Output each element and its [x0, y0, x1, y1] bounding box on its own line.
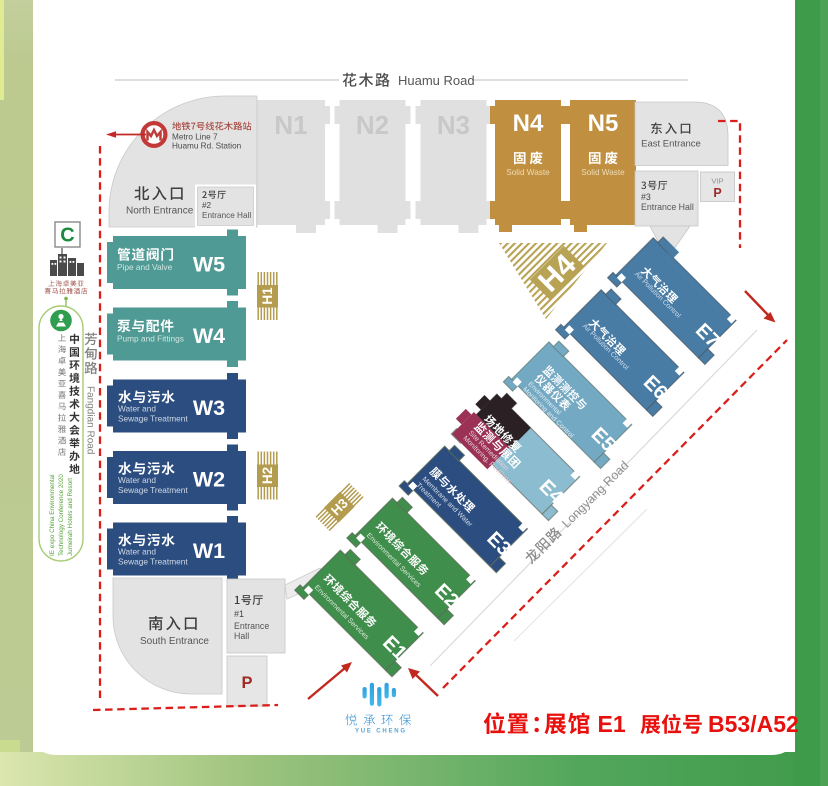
svg-text:Metro Line 7: Metro Line 7	[172, 133, 218, 142]
svg-text:#1: #1	[234, 609, 244, 619]
svg-text:VIP: VIP	[711, 177, 723, 186]
svg-text:Sewage Treatment: Sewage Treatment	[118, 485, 188, 495]
svg-text:Solid Waste: Solid Waste	[581, 168, 625, 177]
svg-text:Huamu Rd. Station: Huamu Rd. Station	[172, 142, 242, 151]
svg-text:Water and: Water and	[118, 475, 156, 485]
svg-text:Entrance Hall: Entrance Hall	[641, 202, 694, 212]
svg-text:W2: W2	[193, 468, 225, 492]
svg-text:Entrance Hall: Entrance Hall	[202, 211, 251, 220]
svg-text:Water and: Water and	[118, 404, 156, 414]
svg-text:Jumeirah Hotels and Resort: Jumeirah Hotels and Resort	[67, 478, 74, 556]
svg-text:YUE CHENG: YUE CHENG	[355, 729, 407, 735]
svg-text:Sewage Treatment: Sewage Treatment	[118, 557, 188, 567]
svg-text:N4: N4	[513, 110, 544, 137]
svg-text:H2: H2	[260, 467, 275, 484]
svg-text:P: P	[241, 674, 252, 692]
svg-text:Water and: Water and	[118, 547, 156, 557]
svg-text:W4: W4	[193, 324, 225, 348]
svg-text:N3: N3	[437, 110, 470, 140]
svg-text:C: C	[60, 225, 74, 247]
svg-text:#3: #3	[641, 192, 651, 202]
svg-text:W3: W3	[193, 396, 225, 420]
svg-text:South Entrance: South Entrance	[140, 636, 209, 647]
svg-text:W1: W1	[193, 539, 225, 563]
svg-text:Pipe and Valve: Pipe and Valve	[117, 262, 173, 272]
svg-text:Entrance: Entrance	[234, 621, 269, 631]
svg-text:East Entrance: East Entrance	[641, 139, 701, 150]
svg-text:N1: N1	[274, 110, 307, 140]
svg-text:P: P	[713, 186, 721, 200]
svg-text:Hall: Hall	[234, 631, 249, 641]
svg-text:Pump and Fittings: Pump and Fittings	[117, 334, 184, 344]
svg-text:Fangdian Road: Fangdian Road	[85, 386, 96, 454]
svg-text:N5: N5	[588, 110, 619, 137]
svg-text:Huamu Road: Huamu Road	[398, 73, 475, 88]
svg-text:Sewage Treatment: Sewage Treatment	[118, 414, 188, 424]
svg-text:N2: N2	[356, 110, 389, 140]
svg-text:Solid Waste: Solid Waste	[506, 168, 550, 177]
svg-text:B53/A52: B53/A52	[708, 711, 799, 737]
svg-text:IE expo China Environmental: IE expo China Environmental	[49, 474, 56, 556]
svg-text:W5: W5	[193, 253, 225, 277]
svg-text:North Entrance: North Entrance	[126, 206, 194, 217]
svg-text:H1: H1	[260, 287, 275, 305]
svg-text:Technology Conference 2020: Technology Conference 2020	[58, 474, 65, 556]
svg-text:#2: #2	[202, 201, 212, 210]
svg-text:E1: E1	[598, 711, 626, 737]
